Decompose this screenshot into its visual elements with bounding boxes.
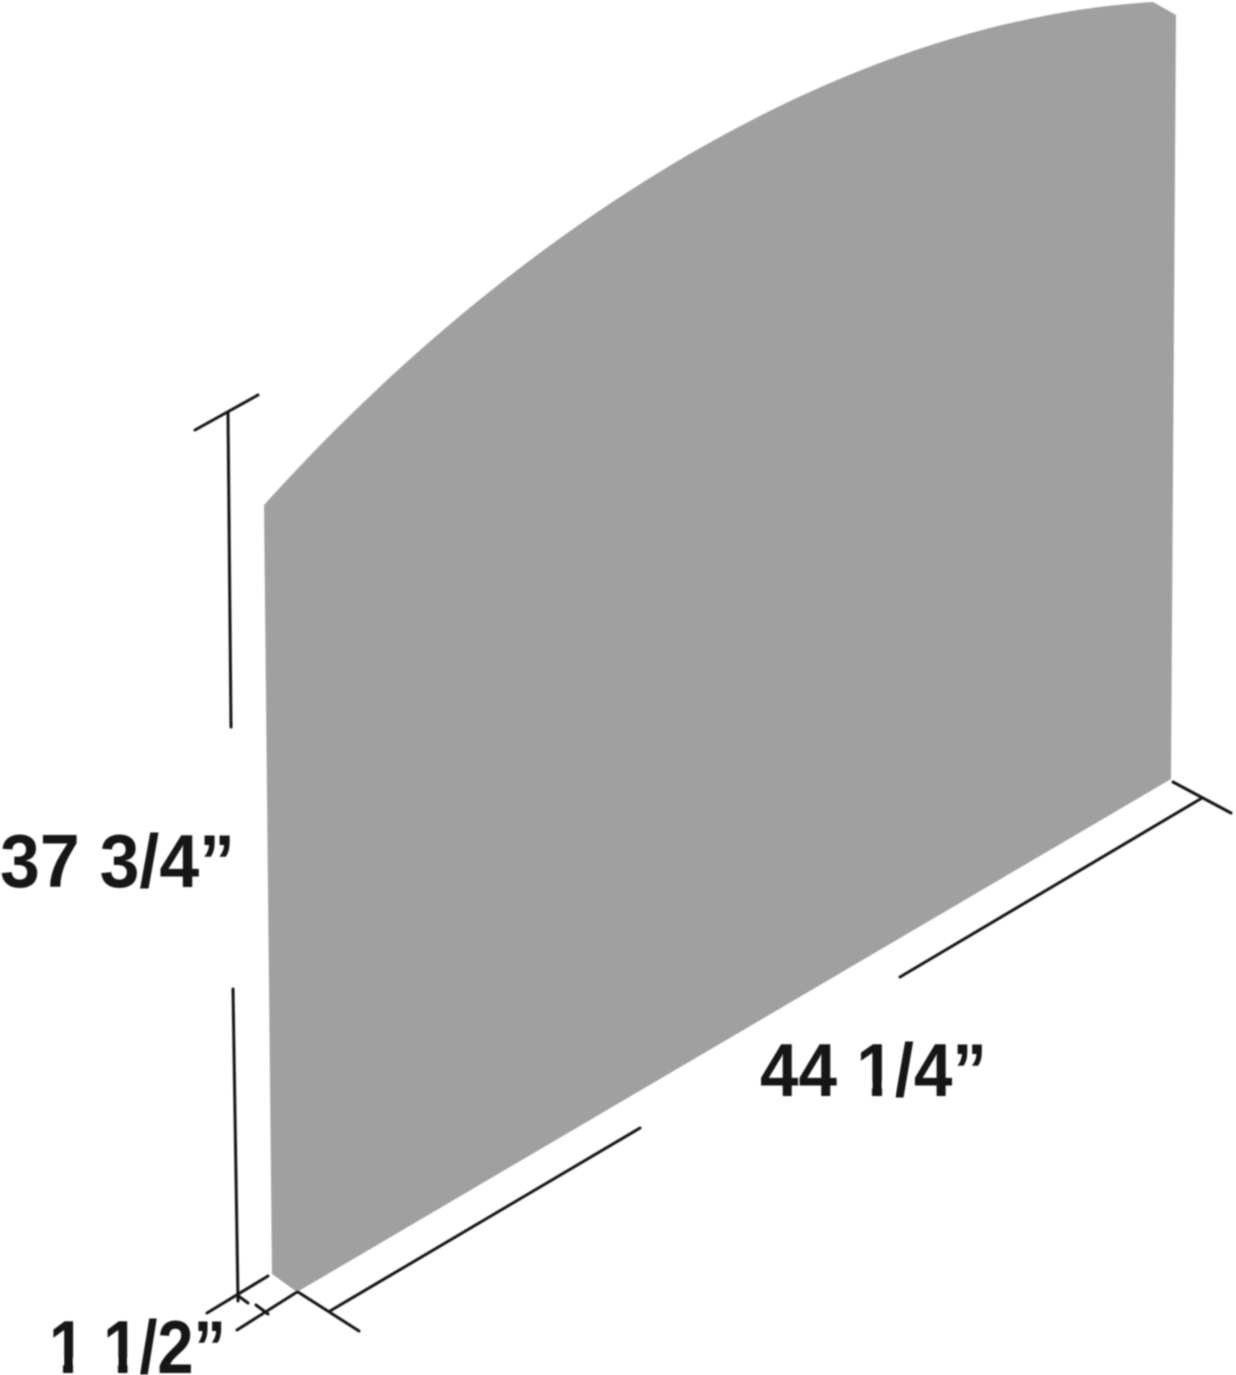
svg-text:44 1/4”: 44 1/4”	[760, 1028, 987, 1112]
svg-text:37 3/4”: 37 3/4”	[0, 819, 235, 903]
